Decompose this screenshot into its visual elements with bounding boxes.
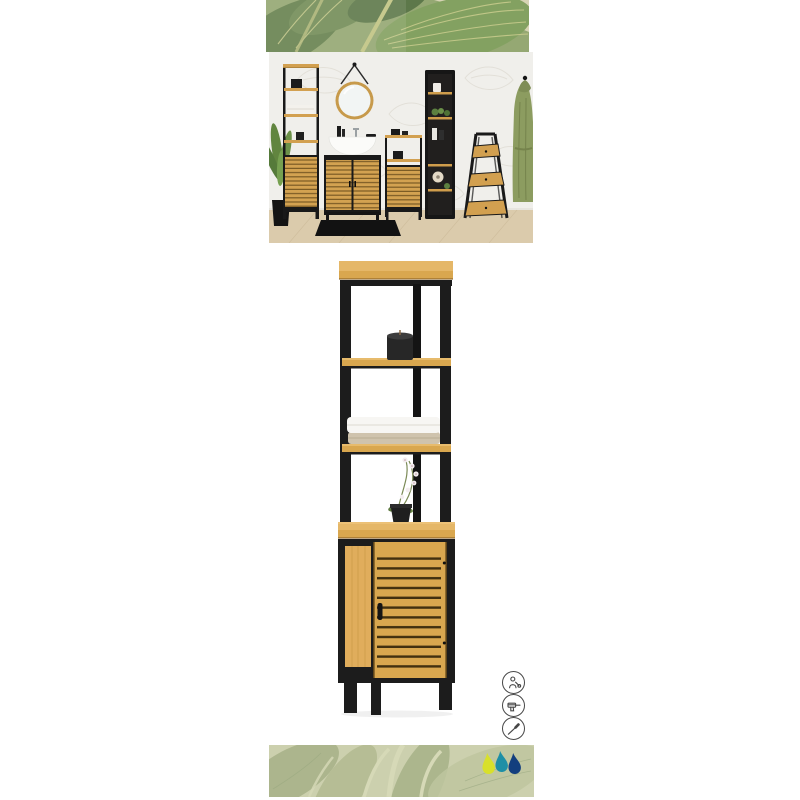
- cabinet-top-slab: [338, 522, 455, 539]
- open-shelf-2: [342, 444, 451, 455]
- bottom-banner: [269, 745, 534, 797]
- orchid-pot-rim: [390, 504, 412, 508]
- bathroom-scene: [269, 52, 533, 243]
- black-box: [291, 79, 302, 88]
- lifestyle-photo: [269, 52, 533, 243]
- screwdriver-icon: [502, 717, 525, 740]
- small-plant: [432, 109, 439, 116]
- black-accessory: [393, 151, 403, 159]
- top-rail: [340, 280, 452, 286]
- black-accessory: [402, 131, 408, 135]
- door-hinge: [443, 562, 446, 565]
- white-jar: [433, 83, 441, 92]
- small-plant: [444, 183, 450, 189]
- door-handle: [354, 181, 356, 187]
- black-rug: [315, 220, 401, 236]
- mirror-hook: [353, 63, 357, 67]
- black-column-shelf: [425, 70, 455, 219]
- assembly-person-icon: [502, 671, 525, 694]
- black-bottle: [337, 126, 341, 137]
- black-accessory: [391, 129, 400, 135]
- candle: [387, 330, 413, 360]
- top-banner-leaf-art: [266, 0, 529, 52]
- frame-column-back: [413, 284, 421, 523]
- frame-column-right: [440, 280, 451, 523]
- feature-badges: [502, 671, 527, 740]
- top-banner: [266, 0, 529, 52]
- cosmetic-tube: [432, 128, 437, 140]
- tall-cabinet: [337, 258, 458, 718]
- banner-haze: [266, 0, 406, 52]
- soap-dish: [366, 134, 376, 137]
- faucet: [355, 129, 357, 137]
- door-handle: [378, 603, 383, 620]
- basin-cabinet-door-right: [354, 160, 380, 210]
- bottom-banner-leaf-art: [269, 745, 534, 797]
- black-bottle: [342, 129, 345, 137]
- banner-haze: [269, 745, 534, 797]
- frame-column-left: [340, 280, 351, 523]
- louver-door: [387, 167, 420, 207]
- louver-door: [285, 157, 317, 207]
- door-louvers: [377, 550, 441, 670]
- basin-cabinet-door-left: [326, 160, 352, 210]
- floor-shadow: [341, 711, 453, 718]
- product-sheet: [0, 0, 800, 800]
- product-image: [337, 258, 458, 718]
- door-handle: [349, 181, 351, 187]
- drill-icon: [502, 694, 525, 717]
- small-vase: [296, 132, 304, 140]
- cabinet-door: [373, 542, 447, 678]
- cabinet-body: [338, 539, 455, 683]
- door-hinge: [443, 642, 446, 645]
- cabinet-legs: [344, 683, 452, 715]
- product-top-slab: [339, 261, 453, 280]
- small-plant: [438, 108, 444, 114]
- wall-hook: [523, 76, 527, 80]
- black-bottle: [439, 130, 444, 140]
- towels: [347, 417, 440, 444]
- wash-basin-unit: [324, 126, 381, 221]
- small-plant: [444, 110, 450, 116]
